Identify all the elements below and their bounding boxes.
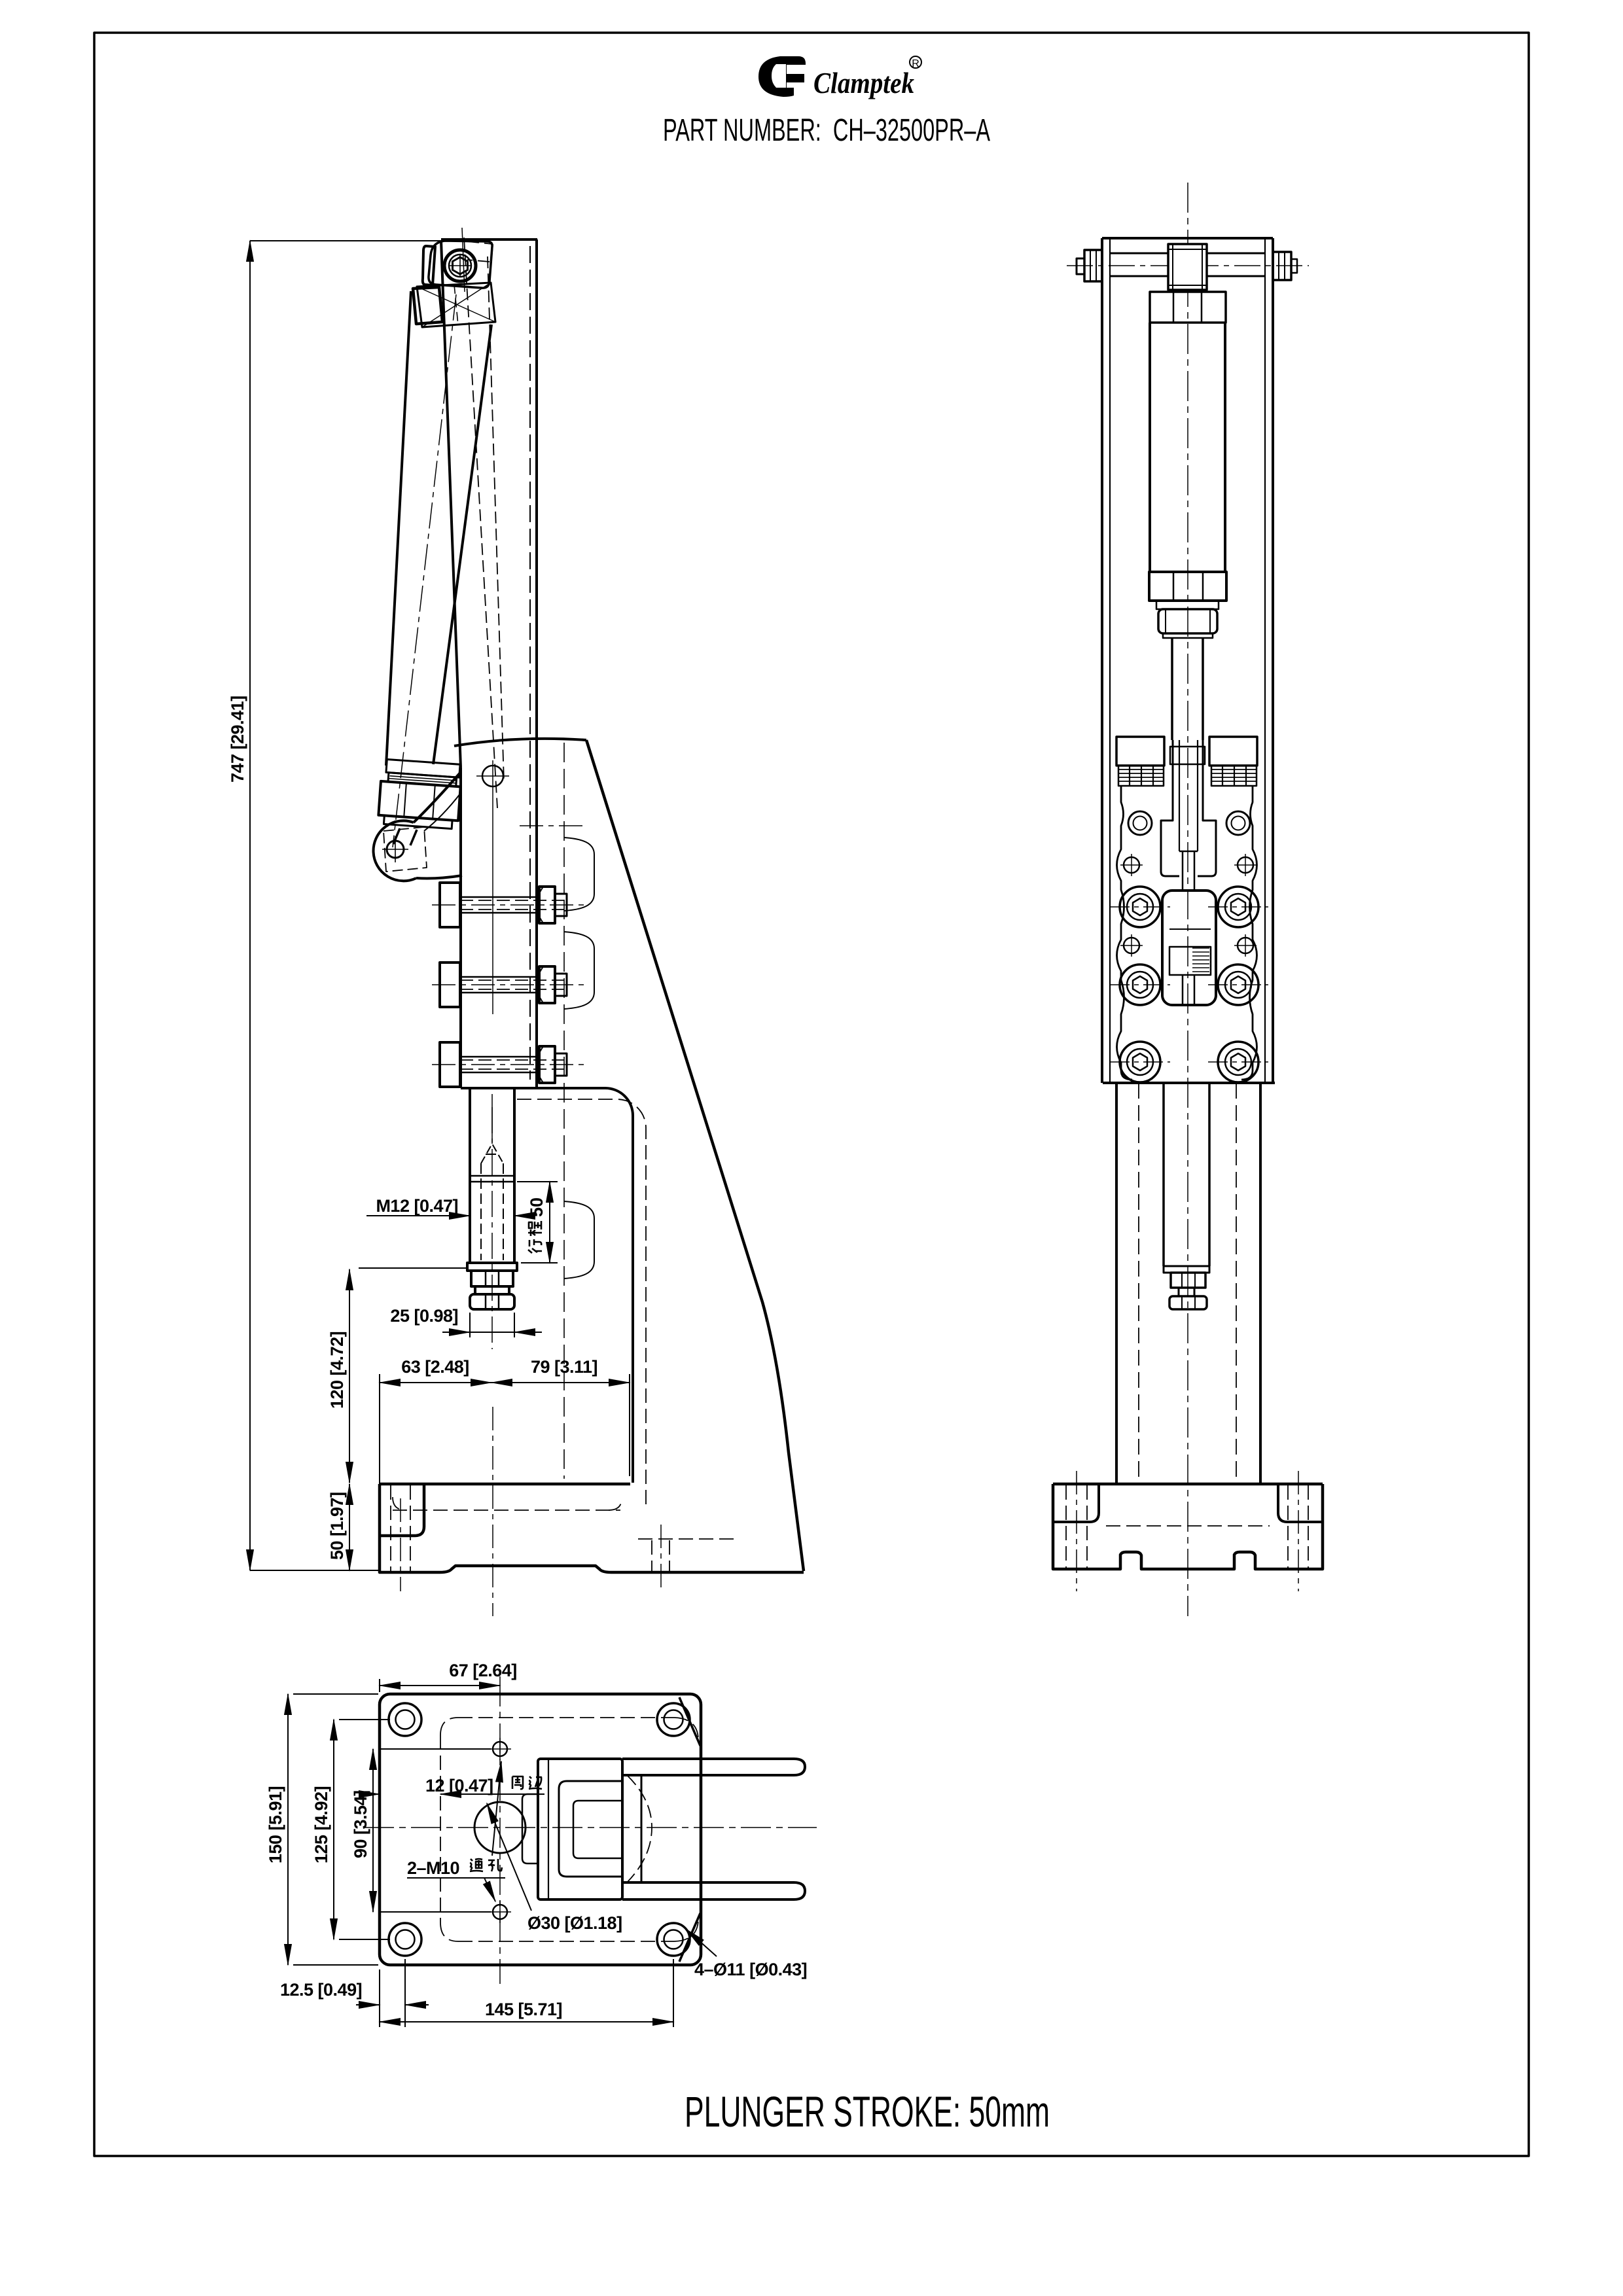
svg-text:Clamptek: Clamptek xyxy=(813,66,914,99)
svg-text:145 [5.71]: 145 [5.71] xyxy=(485,2000,562,2019)
svg-text:150 [5.91]: 150 [5.91] xyxy=(266,1786,285,1863)
svg-text:63 [2.48]: 63 [2.48] xyxy=(401,1357,469,1377)
svg-text:2–M10: 2–M10 xyxy=(407,1858,459,1878)
svg-text:R: R xyxy=(912,58,919,69)
svg-text:50 [1.97]: 50 [1.97] xyxy=(327,1492,347,1560)
svg-text:90 [3.54]: 90 [3.54] xyxy=(351,1790,370,1858)
svg-text:4–Ø11 [Ø0.43]: 4–Ø11 [Ø0.43] xyxy=(694,1960,807,1979)
svg-text:747 [29.41]: 747 [29.41] xyxy=(228,696,247,783)
svg-text:120 [4.72]: 120 [4.72] xyxy=(327,1332,347,1409)
svg-text:12.5 [0.49]: 12.5 [0.49] xyxy=(280,1980,362,2000)
svg-text:79 [3.11]: 79 [3.11] xyxy=(531,1357,597,1377)
svg-text:50: 50 xyxy=(527,1197,546,1217)
svg-text:Ø30 [Ø1.18]: Ø30 [Ø1.18] xyxy=(527,1913,622,1933)
svg-text:25 [0.98]: 25 [0.98] xyxy=(390,1306,458,1326)
svg-text:12 [0.47]: 12 [0.47] xyxy=(425,1776,493,1795)
svg-text:PART NUMBER: CH–32500PR–A: PART NUMBER: CH–32500PR–A xyxy=(663,113,990,148)
svg-text:M12 [0.47]: M12 [0.47] xyxy=(376,1196,458,1216)
svg-text:125 [4.92]: 125 [4.92] xyxy=(312,1786,331,1863)
svg-text:67 [2.64]: 67 [2.64] xyxy=(449,1661,517,1680)
svg-text:PLUNGER STROKE: 50mm: PLUNGER STROKE: 50mm xyxy=(685,2087,1050,2136)
